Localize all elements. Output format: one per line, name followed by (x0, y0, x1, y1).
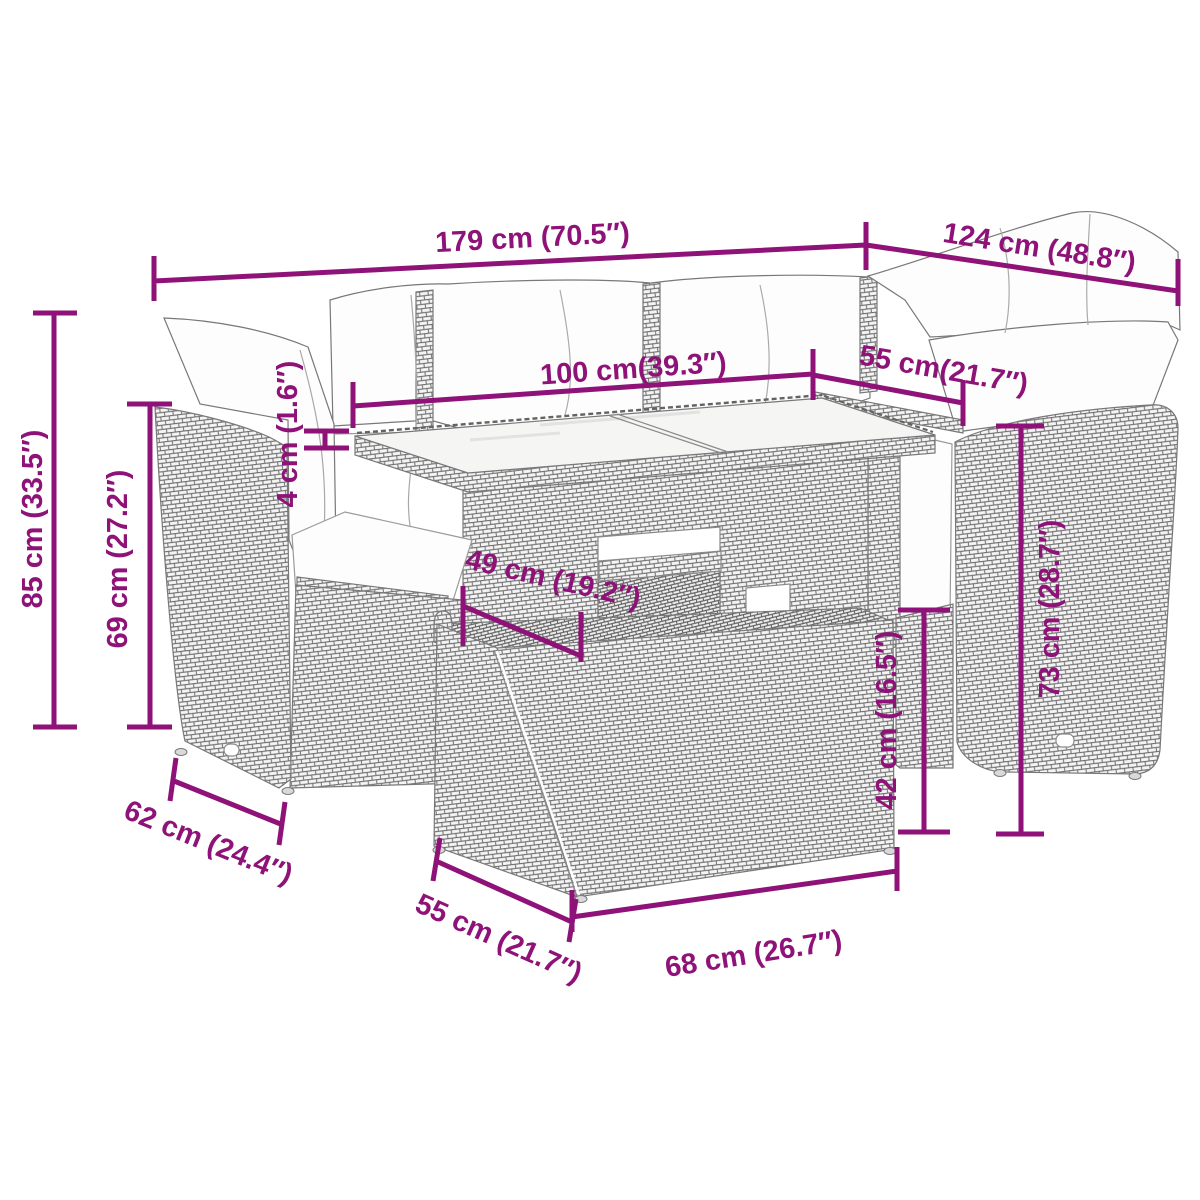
svg-text:85 cm (33.5″): 85 cm (33.5″) (17, 430, 49, 609)
svg-text:4 cm (1.6″): 4 cm (1.6″) (272, 361, 304, 508)
svg-text:42 cm (16.5″): 42 cm (16.5″) (871, 631, 903, 810)
svg-text:69 cm (27.2″): 69 cm (27.2″) (102, 470, 134, 649)
svg-text:73 cm (28.7″): 73 cm (28.7″) (1034, 520, 1066, 699)
